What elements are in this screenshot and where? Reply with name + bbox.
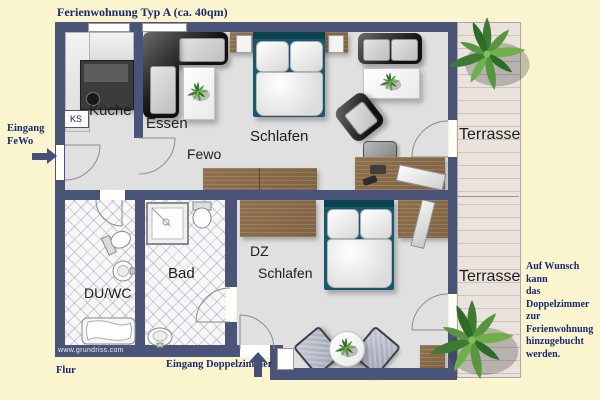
wall-duwc-bad	[135, 200, 145, 345]
sofa-cushion	[363, 39, 390, 61]
fridge-ks-box: KS	[63, 110, 89, 128]
room-label-terrasse-bottom: Terrasse	[459, 268, 520, 286]
dz-double-bed	[324, 198, 394, 290]
window-essen	[142, 23, 187, 32]
room-label-duwc: DU/WC	[84, 285, 131, 301]
wall-right-a	[448, 22, 457, 120]
dining-table	[183, 67, 215, 120]
laptop	[396, 164, 446, 191]
wall-bad-dz-lower	[225, 322, 237, 345]
note-line4: hinzugebucht	[526, 336, 598, 349]
bed-blanket	[256, 72, 323, 116]
duwc-floor	[65, 200, 135, 345]
room-label-schlafen-fewo: Schlafen	[250, 128, 308, 145]
wall-kueche-essen	[134, 32, 143, 138]
page-title: Ferienwohnung Typ A (ca. 40qm)	[57, 5, 228, 20]
sofa-cushion	[391, 39, 418, 61]
fewo-double-bed	[253, 30, 325, 117]
wall-middle-b	[125, 190, 448, 200]
wall-right-c	[448, 330, 457, 380]
sofa-cushion	[150, 66, 176, 114]
desk	[355, 157, 445, 192]
nightstand-left	[236, 35, 252, 53]
door-opening-duwc	[100, 190, 125, 200]
entrance-fewo-line2: FeWo	[7, 135, 44, 148]
sideboard-divider	[259, 168, 260, 190]
dz-door-leaf	[277, 348, 294, 370]
sideboard-row	[203, 168, 317, 190]
door-opening-fewo-terrace	[449, 120, 456, 157]
entrance-fewo-label: Eingang FeWo	[7, 122, 44, 148]
note-line5: werden.	[526, 349, 598, 362]
nightstand-right	[328, 35, 344, 53]
entrance-fewo-arrow-icon	[47, 148, 57, 164]
note-line3: zur Ferienwohnung	[526, 311, 598, 336]
dz-corner-cabinet	[420, 345, 445, 368]
desk-item	[370, 165, 386, 174]
pillow	[290, 41, 323, 72]
room-label-dz-schlafen: Schlafen	[258, 265, 312, 281]
entrance-dz-arrow-icon	[249, 352, 267, 362]
entrance-fewo-arrow-shaft	[32, 153, 47, 160]
armchair-cushion	[344, 101, 379, 136]
room-label-dz: DZ	[250, 243, 269, 259]
note-line2: das Doppelzimmer	[526, 286, 598, 311]
wall-right-b	[448, 157, 457, 294]
entrance-fewo-line1: Eingang	[7, 122, 44, 135]
door-opening-bad	[226, 287, 236, 322]
flur-label: Flur	[56, 365, 76, 376]
terrace-divider-line	[457, 196, 519, 197]
wall-middle-a	[65, 190, 100, 200]
corner-sofa-left-arm	[143, 32, 179, 118]
coffee-table	[363, 68, 420, 99]
floor-plan-page: Ferienwohnung Typ A (ca. 40qm) KS	[0, 0, 600, 400]
bed-blanket	[327, 239, 392, 288]
living-sofa	[358, 33, 422, 64]
room-label-fewo: Fewo	[187, 146, 221, 162]
door-opening-dz-terrace	[449, 294, 456, 330]
stove-top	[84, 64, 128, 82]
booking-note: Auf Wunsch kann das Doppelzimmer zur Fer…	[526, 261, 598, 361]
wall-left	[55, 22, 65, 357]
door-opening-fewo-entrance	[56, 145, 64, 180]
room-label-essen: Essen	[146, 115, 188, 132]
desk-item	[362, 175, 378, 186]
watermark: www.grundriss.com	[58, 347, 124, 354]
dz-round-table	[329, 331, 365, 367]
wall-bottom-right	[283, 368, 448, 380]
room-label-kueche: Küche	[89, 102, 132, 119]
pillow	[360, 209, 392, 239]
sofa-cushion	[179, 38, 225, 62]
pillow	[256, 41, 289, 72]
room-label-terrasse-top: Terrasse	[459, 126, 520, 144]
window-kueche	[88, 23, 130, 32]
entrance-dz-arrow-shaft	[254, 361, 262, 377]
wall-bad-dz-upper	[225, 200, 237, 287]
room-label-bad: Bad	[168, 265, 195, 282]
dz-sideboard	[240, 200, 316, 237]
terrace-deck	[457, 22, 521, 378]
note-line1: Auf Wunsch kann	[526, 261, 598, 286]
pillow	[327, 209, 359, 239]
